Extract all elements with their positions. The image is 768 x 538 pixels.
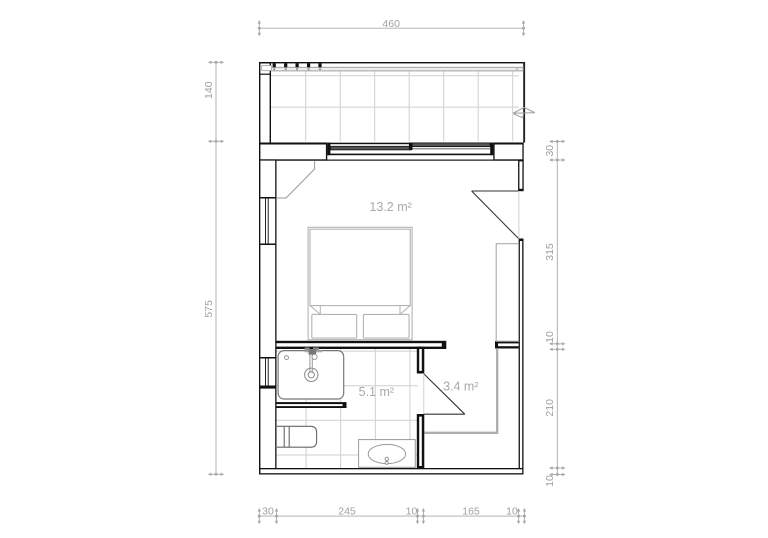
svg-text:575: 575 bbox=[203, 300, 215, 318]
svg-text:30: 30 bbox=[544, 145, 556, 157]
svg-text:10: 10 bbox=[406, 506, 418, 518]
svg-text:140: 140 bbox=[203, 81, 215, 99]
svg-text:3.4 m²: 3.4 m² bbox=[443, 379, 478, 393]
svg-text:165: 165 bbox=[462, 506, 480, 518]
svg-text:460: 460 bbox=[382, 18, 400, 30]
svg-text:13.2 m²: 13.2 m² bbox=[369, 200, 411, 214]
svg-text:5.1 m²: 5.1 m² bbox=[359, 385, 394, 399]
svg-text:10: 10 bbox=[544, 331, 556, 343]
svg-text:245: 245 bbox=[338, 506, 356, 518]
svg-text:10: 10 bbox=[544, 475, 556, 487]
svg-text:315: 315 bbox=[544, 243, 556, 261]
svg-text:30: 30 bbox=[262, 506, 274, 518]
svg-text:210: 210 bbox=[544, 399, 556, 417]
svg-text:10: 10 bbox=[506, 506, 518, 518]
